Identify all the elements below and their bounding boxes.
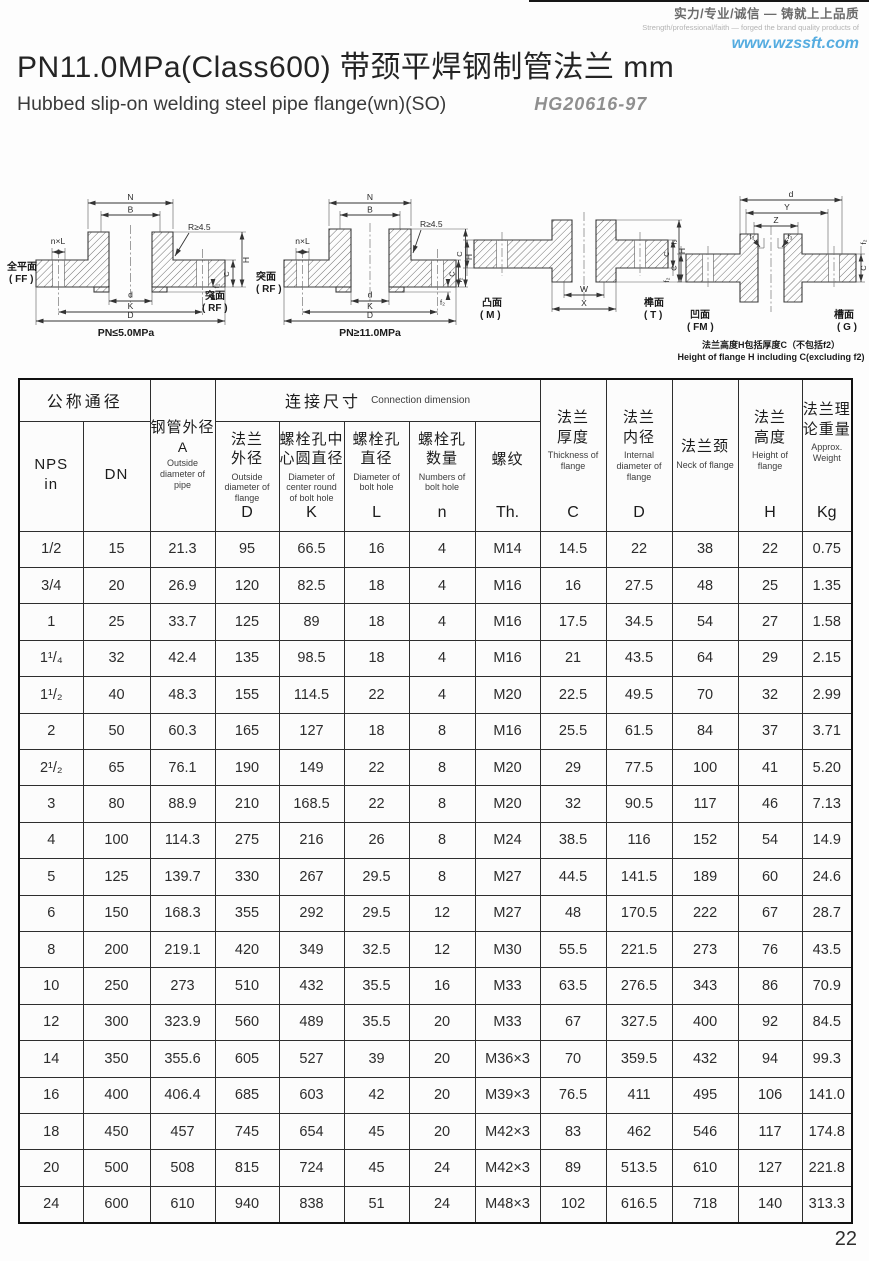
table-row: 2¹/₂6576.1190149228M202977.5100415.20 — [19, 749, 852, 785]
table-row: 184504577456544520M42×383462546117174.8 — [19, 1114, 852, 1150]
header-flange-id: 法兰 内径 Internal diameter of flange D — [606, 379, 672, 531]
header-id-zh: 法兰 内径 — [623, 408, 655, 447]
header-thickness-en: Thickness of flange — [541, 450, 606, 472]
header-height-en: Height of flange — [739, 450, 802, 472]
table-cell: 3/4 — [19, 567, 83, 603]
table-cell: 489 — [279, 1004, 344, 1040]
table-cell: M20 — [475, 749, 540, 785]
table-cell: 116 — [606, 822, 672, 858]
header-bolt-circle-zh: 螺栓孔中 心圆直径 — [280, 430, 344, 469]
face-label-fm-zh: 凹面 — [690, 309, 710, 321]
table-cell: 149 — [279, 749, 344, 785]
table-cell: 221.5 — [606, 931, 672, 967]
table-cell: 84 — [672, 713, 738, 749]
table-cell: 50 — [83, 713, 150, 749]
table-cell: 718 — [672, 1186, 738, 1222]
dim-label-r: R≥4.5 — [188, 222, 211, 232]
page-number: 22 — [835, 1228, 857, 1251]
dim-label-f1: f₁ — [212, 283, 221, 288]
table-row: 16400406.46856034220M39×376.541149510614… — [19, 1077, 852, 1113]
header-od-en: Outside diameter of flange — [216, 472, 279, 504]
table-cell: 155 — [215, 677, 279, 713]
table-cell: M24 — [475, 822, 540, 858]
diagram1-caption: PN≤5.0MPa — [98, 327, 155, 339]
header-bolt-count-zh: 螺栓孔 数量 — [418, 430, 466, 469]
table-cell: 140 — [738, 1186, 802, 1222]
table-cell: 5 — [19, 859, 83, 895]
header-neck-zh: 法兰颈 — [681, 437, 729, 457]
dim-label-n: N — [367, 192, 373, 202]
table-row: 38088.9210168.5228M203290.5117467.13 — [19, 786, 852, 822]
table-cell: 22 — [606, 531, 672, 567]
table-row: 5125139.733026729.58M2744.5141.51896024.… — [19, 859, 852, 895]
header-nominal-diameter: 公称通径 — [19, 379, 150, 421]
page-subtitle: Hubbed slip-on welding steel pipe flange… — [17, 93, 446, 116]
table-cell: 276.5 — [606, 968, 672, 1004]
table-cell: 100 — [83, 822, 150, 858]
table-cell: 44.5 — [540, 859, 606, 895]
table-cell: M16 — [475, 640, 540, 676]
header-thread-letter: Th. — [496, 504, 519, 528]
table-cell: 349 — [279, 931, 344, 967]
table-cell: 219.1 — [150, 931, 215, 967]
table-cell: 35.5 — [344, 1004, 409, 1040]
header-dn: DN — [83, 421, 150, 531]
table-cell: 51 — [344, 1186, 409, 1222]
table-cell: 28.7 — [802, 895, 852, 931]
table-cell: 86 — [738, 968, 802, 1004]
face-label-t-code: ( T ) — [644, 310, 662, 321]
dim-label-dd: D — [367, 310, 373, 320]
dim-label-w: W — [580, 284, 588, 294]
table-cell: 6 — [19, 895, 83, 931]
title-block: PN11.0MPa(Class600) 带颈平焊钢制管法兰 mm Hubbed … — [17, 42, 855, 116]
header-weight-letter: Kg — [817, 504, 837, 528]
table-cell: 152 — [672, 822, 738, 858]
table-cell: 14 — [19, 1041, 83, 1077]
table-row: 1¹/₄3242.413598.5184M162143.564292.15 — [19, 640, 852, 676]
table-cell: 125 — [215, 604, 279, 640]
table-row: 1025027351043235.516M3363.5276.53438670.… — [19, 968, 852, 1004]
table-cell: 27.5 — [606, 567, 672, 603]
table-cell: M16 — [475, 713, 540, 749]
dim-label-c: C — [448, 271, 457, 277]
header-nps: NPS in — [19, 421, 83, 531]
table-cell: 300 — [83, 1004, 150, 1040]
table-cell: 1¹/₂ — [19, 677, 83, 713]
table-row: 14350355.66055273920M36×370359.54329499.… — [19, 1041, 852, 1077]
table-cell: 616.5 — [606, 1186, 672, 1222]
flange-section-right — [389, 229, 456, 287]
table-cell: 273 — [150, 968, 215, 1004]
header-od-zh: 法兰 外径 — [231, 430, 263, 469]
dim-label-d: d — [789, 189, 794, 199]
table-cell: 84.5 — [802, 1004, 852, 1040]
table-cell: 1 — [19, 604, 83, 640]
table-cell: 16 — [19, 1077, 83, 1113]
table-cell: 139.7 — [150, 859, 215, 895]
header-flange-thickness: 法兰 厚度 Thickness of flange C — [540, 379, 606, 531]
table-cell: 83 — [540, 1114, 606, 1150]
header-pipe-od: 钢管外径 A Outside diameter of pipe — [150, 379, 215, 531]
table-cell: 610 — [150, 1186, 215, 1222]
table-cell: 100 — [672, 749, 738, 785]
table-cell: 8 — [409, 786, 475, 822]
table-cell: 2 — [19, 713, 83, 749]
table-cell: 292 — [279, 895, 344, 931]
table-cell: 745 — [215, 1114, 279, 1150]
table-cell: M16 — [475, 567, 540, 603]
table-cell: 66.5 — [279, 531, 344, 567]
table-cell: 33.7 — [150, 604, 215, 640]
table-cell: 18 — [19, 1114, 83, 1150]
table-cell: 18 — [344, 640, 409, 676]
table-cell: 20 — [409, 1077, 475, 1113]
table-row: 246006109408385124M48×3102616.5718140313… — [19, 1186, 852, 1222]
header-connection-dimension: 连接尺寸 Connection dimension — [215, 379, 540, 421]
face-label-m-code: ( M ) — [480, 310, 501, 321]
table-cell: 24.6 — [802, 859, 852, 895]
table-cell: 457 — [150, 1114, 215, 1150]
table-cell: 189 — [672, 859, 738, 895]
face-label-ff-zh: 全平面 — [6, 260, 37, 273]
table-cell: 42 — [344, 1077, 409, 1113]
diagram-flange-rf-high: N B n×L R≥4.5 d K D C H f₂ 突面 ( RF ) PN≥… — [256, 183, 468, 339]
table-cell: 67 — [540, 1004, 606, 1040]
table-cell: M36×3 — [475, 1041, 540, 1077]
header-id-en: Internal diameter of flange — [607, 450, 672, 482]
table-cell: 654 — [279, 1114, 344, 1150]
table-cell: 359.5 — [606, 1041, 672, 1077]
header-connection-en: Connection dimension — [371, 395, 470, 406]
table-cell: 450 — [83, 1114, 150, 1150]
flange-section-right — [152, 232, 225, 287]
header-bolt-circle-letter: K — [306, 504, 317, 528]
table-cell: 8 — [19, 931, 83, 967]
standard-number: HG20616-97 — [534, 94, 647, 115]
table-row: 25060.3165127188M1625.561.584373.71 — [19, 713, 852, 749]
header-thread-zh: 螺纹 — [492, 450, 524, 470]
table-cell: 25 — [83, 604, 150, 640]
table-cell: 4 — [409, 604, 475, 640]
table-cell: 127 — [738, 1150, 802, 1186]
header-flange-weight: 法兰理 论重量 Approx. Weight Kg — [802, 379, 852, 531]
table-cell: 14.5 — [540, 531, 606, 567]
table-cell: 16 — [344, 531, 409, 567]
face-label-g-zh: 槽面 — [834, 308, 854, 321]
table-row: 3/42026.912082.5184M161627.548251.35 — [19, 567, 852, 603]
table-cell: 89 — [540, 1150, 606, 1186]
table-cell: 29 — [540, 749, 606, 785]
table-cell: 114.5 — [279, 677, 344, 713]
header-weight-en: Approx. Weight — [803, 442, 852, 464]
brand-slogan-zh: 实力/专业/诚信 — 铸就上上品质 — [642, 3, 859, 22]
table-cell: 42.4 — [150, 640, 215, 676]
table-cell: 99.3 — [802, 1041, 852, 1077]
table-cell: 2¹/₂ — [19, 749, 83, 785]
table-cell: 141.5 — [606, 859, 672, 895]
table-cell: 323.9 — [150, 1004, 215, 1040]
table-cell: 39 — [344, 1041, 409, 1077]
table-cell: 1¹/₄ — [19, 640, 83, 676]
table-cell: 48 — [672, 567, 738, 603]
table-cell: 500 — [83, 1150, 150, 1186]
dim-label-f3-left: f₃ — [749, 232, 754, 241]
table-cell: 76 — [738, 931, 802, 967]
table-cell: 216 — [279, 822, 344, 858]
table-cell: 70.9 — [802, 968, 852, 1004]
dim-label-c-right: C — [859, 265, 868, 271]
table-cell: 48 — [540, 895, 606, 931]
table-cell: 221.8 — [802, 1150, 852, 1186]
table-cell: 55.5 — [540, 931, 606, 967]
flange-section-right — [784, 234, 856, 302]
table-cell: 38 — [672, 531, 738, 567]
header-nps-label: NPS in — [34, 455, 68, 494]
table-cell: 462 — [606, 1114, 672, 1150]
table-cell: M42×3 — [475, 1114, 540, 1150]
dim-label-f2: f₂ — [440, 298, 445, 307]
table-cell: 135 — [215, 640, 279, 676]
table-cell: 32 — [540, 786, 606, 822]
table-cell: 16 — [540, 567, 606, 603]
header-thickness-letter: C — [567, 504, 579, 528]
table-cell: 174.8 — [802, 1114, 852, 1150]
table-cell: 838 — [279, 1186, 344, 1222]
table-cell: 20 — [409, 1041, 475, 1077]
table-cell: 495 — [672, 1077, 738, 1113]
table-cell: 95 — [215, 531, 279, 567]
table-cell: 1.35 — [802, 567, 852, 603]
table-cell: 610 — [672, 1150, 738, 1186]
flange-section-left — [686, 234, 758, 302]
dim-label-h: H — [241, 257, 251, 263]
table-header: 公称通径 钢管外径 A Outside diameter of pipe 连接尺… — [19, 379, 852, 531]
dim-label-r: R≥4.5 — [420, 219, 443, 229]
dim-label-b: B — [367, 205, 373, 215]
table-cell: 22 — [344, 677, 409, 713]
table-cell: 560 — [215, 1004, 279, 1040]
table-cell: 513.5 — [606, 1150, 672, 1186]
face-label-rf-zh: 突面 — [205, 289, 225, 302]
table-cell: 400 — [672, 1004, 738, 1040]
table-cell: 355 — [215, 895, 279, 931]
table-cell: 8 — [409, 859, 475, 895]
table-cell: 4 — [19, 822, 83, 858]
table-cell: 815 — [215, 1150, 279, 1186]
header-flange-height: 法兰 高度 Height of flange H — [738, 379, 802, 531]
table-cell: 355.6 — [150, 1041, 215, 1077]
table-cell: 34.5 — [606, 604, 672, 640]
table-cell: 25 — [738, 567, 802, 603]
brand-slogan-en: Strength/professional/faith — forged the… — [642, 23, 859, 32]
table-cell: 20 — [19, 1150, 83, 1186]
table-cell: 102 — [540, 1186, 606, 1222]
header-thread: 螺纹 Th. — [475, 421, 540, 531]
flange-section-left — [474, 220, 572, 282]
catalog-page: 实力/专业/诚信 — 铸就上上品质 Strength/professional/… — [0, 0, 869, 1261]
face-label-ff-code: ( FF ) — [9, 274, 33, 285]
table-cell: 22.5 — [540, 677, 606, 713]
dim-label-dd: D — [127, 310, 133, 320]
header-flange-od: 法兰 外径 Outside diameter of flange D — [215, 421, 279, 531]
table-cell: 49.5 — [606, 677, 672, 713]
table-cell: 40 — [83, 677, 150, 713]
table-cell: 0.75 — [802, 531, 852, 567]
dim-label-nxl: n×L — [51, 236, 66, 246]
table-cell: 432 — [672, 1041, 738, 1077]
table-cell: M27 — [475, 895, 540, 931]
diagram4-caption-en: Height of flange H including C(excluding… — [678, 352, 865, 362]
dim-label-b: B — [128, 205, 134, 215]
table-cell: 106 — [738, 1077, 802, 1113]
table-row: 4100114.3275216268M2438.51161525414.9 — [19, 822, 852, 858]
table-cell: 29 — [738, 640, 802, 676]
table-cell: 420 — [215, 931, 279, 967]
flange-spec-table: 公称通径 钢管外径 A Outside diameter of pipe 连接尺… — [18, 378, 853, 1224]
table-cell: 98.5 — [279, 640, 344, 676]
table-cell: 343 — [672, 968, 738, 1004]
table-row: 12533.712589184M1617.534.554271.58 — [19, 604, 852, 640]
table-cell: 190 — [215, 749, 279, 785]
table-cell: 15 — [83, 531, 150, 567]
table-cell: 24 — [409, 1186, 475, 1222]
table-cell: 275 — [215, 822, 279, 858]
header-bolt-count-en: Numbers of bolt hole — [410, 472, 475, 494]
table-cell: 267 — [279, 859, 344, 895]
table-cell: 32 — [738, 677, 802, 713]
table-cell: M27 — [475, 859, 540, 895]
table-cell: 82.5 — [279, 567, 344, 603]
dim-label-n: N — [127, 192, 133, 202]
table-cell: 29.5 — [344, 895, 409, 931]
table-cell: 2.15 — [802, 640, 852, 676]
table-cell: 90.5 — [606, 786, 672, 822]
table-cell: 12 — [409, 895, 475, 931]
table-cell: 21.3 — [150, 531, 215, 567]
table-cell: 14.9 — [802, 822, 852, 858]
table-cell: 60 — [738, 859, 802, 895]
table-cell: 22 — [344, 786, 409, 822]
table-cell: 92 — [738, 1004, 802, 1040]
table-cell: 32 — [83, 640, 150, 676]
header-flange-neck: 法兰颈 Neck of flange — [672, 379, 738, 531]
table-cell: 685 — [215, 1077, 279, 1113]
header-height-letter: H — [764, 504, 776, 528]
header-bolt-circle: 螺栓孔中 心圆直径 Diameter of center round of bo… — [279, 421, 344, 531]
header-id-letter: D — [633, 504, 645, 528]
table-cell: 24 — [409, 1150, 475, 1186]
table-cell: 546 — [672, 1114, 738, 1150]
table-cell: 940 — [215, 1186, 279, 1222]
table-cell: 1/2 — [19, 531, 83, 567]
table-cell: M20 — [475, 786, 540, 822]
header-bolt-hole-dia: 螺栓孔 直径 Diameter of bolt hole L — [344, 421, 409, 531]
table-cell: 70 — [540, 1041, 606, 1077]
table-cell: M20 — [475, 677, 540, 713]
flange-section-left — [36, 232, 109, 287]
header-neck-en: Neck of flange — [674, 460, 736, 471]
table-cell: 600 — [83, 1186, 150, 1222]
table-row: 6150168.335529229.512M2748170.52226728.7 — [19, 895, 852, 931]
table-cell: 4 — [409, 567, 475, 603]
table-cell: 127 — [279, 713, 344, 749]
header-weight-zh: 法兰理 论重量 — [803, 400, 851, 439]
diagram2-caption: PN≥11.0MPa — [339, 327, 401, 339]
header-bolt-circle-en: Diameter of center round of bolt hole — [280, 472, 344, 504]
table-cell: 150 — [83, 895, 150, 931]
table-cell: 22 — [344, 749, 409, 785]
table-cell: 43.5 — [802, 931, 852, 967]
table-cell: 350 — [83, 1041, 150, 1077]
header-thickness-zh: 法兰 厚度 — [557, 408, 589, 447]
face-label-m-zh: 凸面 — [482, 297, 502, 309]
face-label-g-code: ( G ) — [837, 322, 857, 333]
table-cell: 21 — [540, 640, 606, 676]
raised-face-right — [152, 287, 167, 292]
table-cell: 120 — [215, 567, 279, 603]
table-cell: 273 — [672, 931, 738, 967]
table-cell: 45 — [344, 1114, 409, 1150]
header-pipe-od-zh: 钢管外径 — [151, 418, 215, 438]
table-row: 1¹/₂4048.3155114.5224M2022.549.570322.99 — [19, 677, 852, 713]
face-label-t-zh: 榫面 — [643, 296, 664, 309]
table-cell: 4 — [409, 640, 475, 676]
table-cell: 46 — [738, 786, 802, 822]
table-cell: 89 — [279, 604, 344, 640]
table-cell: 54 — [738, 822, 802, 858]
table-cell: 76.1 — [150, 749, 215, 785]
table-cell: 1.58 — [802, 604, 852, 640]
table-cell: 170.5 — [606, 895, 672, 931]
header-pipe-od-letter: A — [178, 439, 187, 455]
raised-face-left — [336, 287, 351, 292]
table-cell: 41 — [738, 749, 802, 785]
table-row: 12300323.956048935.520M3367327.54009284.… — [19, 1004, 852, 1040]
diagram-flange-m-t: W X C f₂ C f₂ H 凸面 ( M ) 榫面 ( T ) — [458, 196, 684, 336]
table-cell: 32.5 — [344, 931, 409, 967]
table-cell: 200 — [83, 931, 150, 967]
dim-label-f2-left: f₂ — [670, 239, 679, 244]
table-cell: 18 — [344, 567, 409, 603]
table-cell: 45 — [344, 1150, 409, 1186]
table-cell: 63.5 — [540, 968, 606, 1004]
table-cell: M39×3 — [475, 1077, 540, 1113]
table-row: 1/21521.39566.5164M1414.52238220.75 — [19, 531, 852, 567]
table-cell: M14 — [475, 531, 540, 567]
table-cell: 8 — [409, 713, 475, 749]
header-bolt-dia-zh: 螺栓孔 直径 — [353, 430, 401, 469]
table-cell: 37 — [738, 713, 802, 749]
table-cell: 16 — [409, 968, 475, 1004]
table-cell: 117 — [672, 786, 738, 822]
dim-label-c-left: C — [455, 251, 464, 257]
table-cell: 8 — [409, 749, 475, 785]
table-row: 205005088157244524M42×389513.5610127221.… — [19, 1150, 852, 1186]
table-cell: 20 — [409, 1114, 475, 1150]
table-cell: 250 — [83, 968, 150, 1004]
header-bolt-count-letter: n — [438, 504, 447, 528]
table-cell: 64 — [672, 640, 738, 676]
face-label-rf-zh: 突面 — [256, 270, 276, 283]
table-cell: 20 — [83, 567, 150, 603]
table-cell: 17.5 — [540, 604, 606, 640]
table-cell: 5.20 — [802, 749, 852, 785]
dim-label-y: Y — [784, 202, 790, 212]
table-cell: 12 — [409, 931, 475, 967]
table-cell: 4 — [409, 677, 475, 713]
table-cell: 94 — [738, 1041, 802, 1077]
